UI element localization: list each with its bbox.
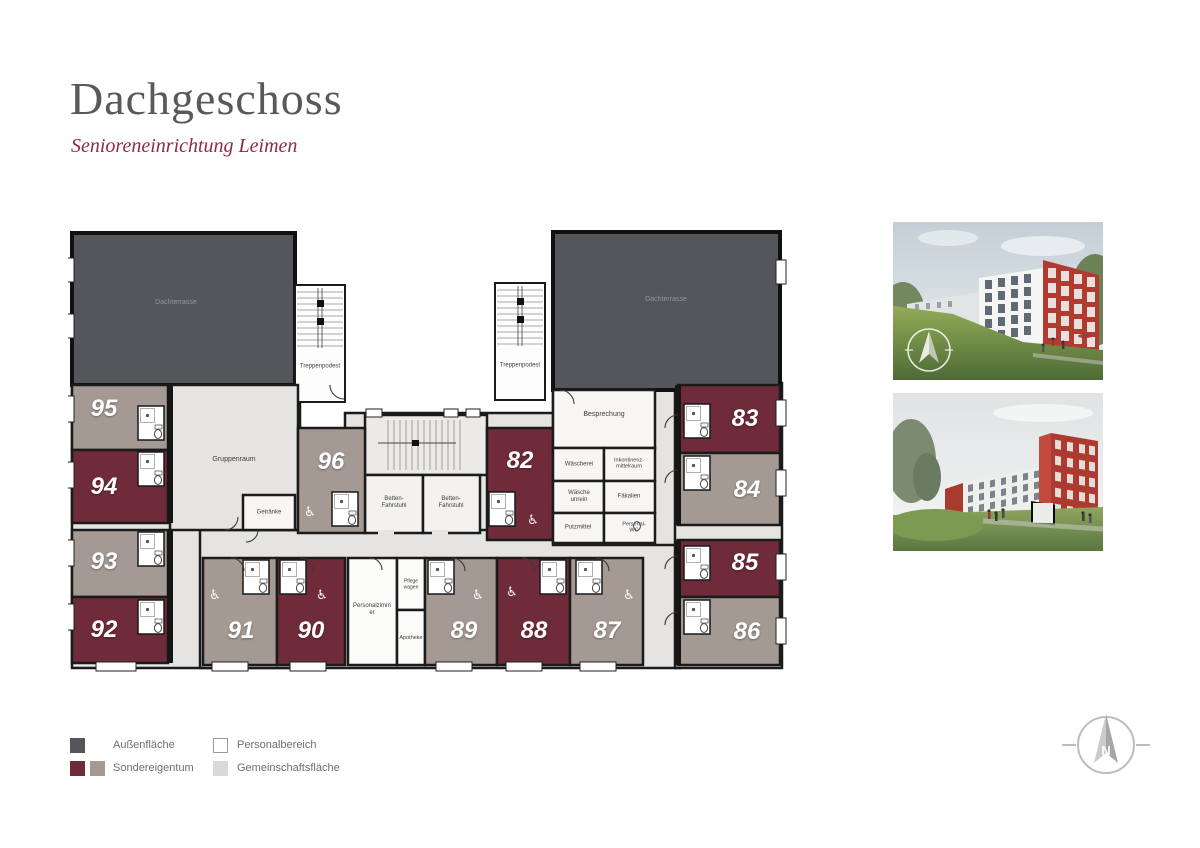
room-number-87: 87: [594, 617, 621, 645]
svg-text:♿: ♿: [623, 588, 635, 603]
label-getraenke: Getränke: [257, 510, 282, 517]
legend-label-aussenflaeche: Außenfläche: [113, 739, 175, 751]
label-besprechung: Besprechung: [583, 411, 624, 419]
room-number-86: 86: [734, 618, 761, 646]
legend-label-personalbereich: Personalbereich: [237, 739, 317, 751]
floorplan-drawing: ♿♿ ♿♿ ♿♿ ♿: [68, 225, 790, 672]
label-treppenpodest-left: Treppenpodest: [300, 364, 340, 371]
room-number-92: 92: [91, 616, 118, 644]
roof-terrace-right: [553, 232, 780, 390]
rendering-photos: [893, 222, 1103, 564]
roof-terrace-left: [72, 233, 295, 385]
room-number-82: 82: [507, 447, 534, 475]
rendering-2-scene: [893, 393, 1103, 551]
label-treppenpodest-right: Treppenpodest: [500, 363, 540, 370]
legend-swatch-gemeinschaftsflaeche: [213, 761, 228, 776]
legend-swatch-sondereigentum-taupe: [90, 761, 105, 776]
rendering-1-scene: [893, 222, 1103, 380]
legend-swatch-personalbereich: [213, 738, 228, 753]
room-number-84: 84: [734, 476, 761, 504]
legend-label-sondereigentum: Sondereigentum: [113, 762, 194, 774]
label-waesche-unrein: Wäsche unrein: [564, 490, 594, 504]
svg-text:♿: ♿: [472, 588, 484, 603]
compass-north-label: N: [1101, 743, 1110, 758]
floorplan: ♿♿ ♿♿ ♿♿ ♿: [68, 225, 790, 672]
label-dachterrasse-right: Dachterrasse: [645, 296, 687, 304]
label-waescherei: Wäscherei: [565, 462, 593, 469]
room-number-93: 93: [91, 548, 118, 576]
compass-icon: N: [1056, 705, 1156, 790]
room-number-89: 89: [451, 617, 478, 645]
svg-text:♿: ♿: [506, 585, 518, 600]
legend-swatch-sondereigentum-red: [70, 761, 85, 776]
room-number-85: 85: [732, 549, 759, 577]
label-faekalien: Fäkalien: [618, 494, 641, 501]
label-putzmittel: Putzmittel: [565, 525, 591, 532]
north-compass: N: [1056, 705, 1156, 790]
svg-text:♿: ♿: [209, 588, 221, 603]
room-number-83: 83: [732, 405, 759, 433]
legend-swatch-aussenflaeche: [70, 738, 85, 753]
room-number-91: 91: [228, 617, 255, 645]
brochure-page: Dachgeschoss Senioreneinrichtung Leimen: [0, 0, 1200, 848]
svg-text:♿: ♿: [304, 505, 316, 520]
label-inkontinenzmittelraum: Inkontinenz-mittelraum: [609, 458, 649, 471]
svg-text:♿: ♿: [316, 588, 328, 603]
label-personal-wc: Personal-WC: [618, 522, 650, 535]
label-pflegewagen: Pflegewagen: [403, 579, 419, 591]
stairwell-right: [495, 283, 545, 400]
building-rendering-photo-1: [893, 222, 1103, 380]
legend-label-gemeinschaftsflaeche: Gemeinschaftsfläche: [237, 762, 340, 774]
room-number-90: 90: [298, 617, 325, 645]
room-number-94: 94: [91, 473, 118, 501]
svg-text:♿: ♿: [527, 513, 539, 528]
label-betten-fahrstuhl-1: Betten-Fahrstuhl: [377, 496, 411, 510]
label-gruppenraum: Gruppenraum: [212, 456, 255, 464]
label-dachterrasse-left: Dachterrasse: [155, 299, 197, 307]
page-subtitle: Senioreneinrichtung Leimen: [71, 135, 297, 158]
building-rendering-photo-2: [893, 393, 1103, 551]
label-apotheke: Apotheke: [399, 635, 422, 641]
room-number-96: 96: [318, 448, 345, 476]
label-betten-fahrstuhl-2: Betten-Fahrstuhl: [434, 496, 468, 510]
room-number-95: 95: [91, 395, 118, 423]
page-title: Dachgeschoss: [70, 72, 343, 125]
legend: Außenfläche Personalbereich Sondereigent…: [70, 736, 490, 782]
label-personalzimmer: Personalzimmer: [352, 603, 392, 617]
room-number-88: 88: [521, 617, 548, 645]
central-stair: [365, 415, 487, 475]
stairwell-left: [295, 285, 345, 402]
